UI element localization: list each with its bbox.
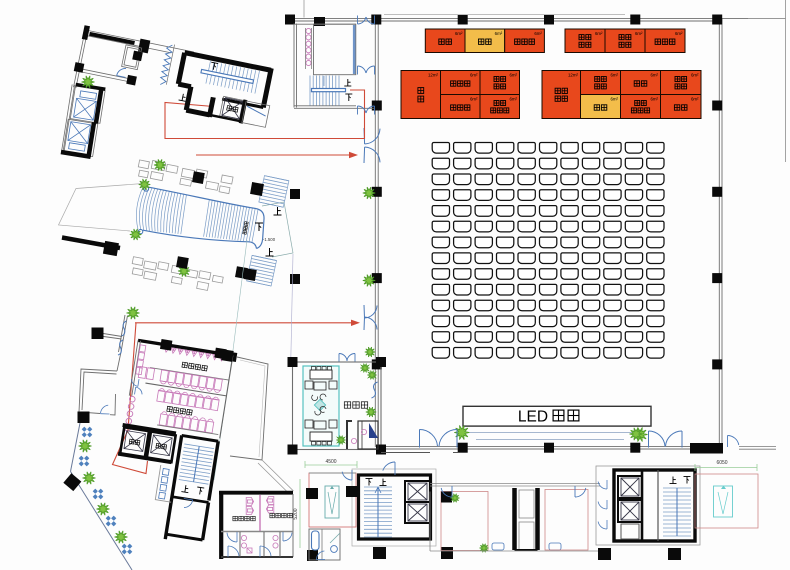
svg-text:6m²: 6m²: [691, 97, 699, 102]
svg-text:6m²: 6m²: [509, 73, 517, 78]
svg-text:4500: 4500: [325, 459, 336, 465]
svg-text:6m²: 6m²: [691, 73, 699, 78]
svg-text:12m²: 12m²: [428, 73, 439, 78]
svg-text:6m²: 6m²: [675, 31, 683, 36]
svg-text:6m²: 6m²: [495, 31, 503, 36]
svg-text:12m²: 12m²: [568, 73, 579, 78]
svg-text:6050: 6050: [716, 460, 727, 466]
svg-text:6m²: 6m²: [455, 31, 463, 36]
svg-text:6m²: 6m²: [470, 73, 478, 78]
svg-text:6m²: 6m²: [610, 97, 618, 102]
svg-text:6m²: 6m²: [650, 97, 658, 102]
svg-text:6m²: 6m²: [595, 31, 603, 36]
svg-text:6m²: 6m²: [650, 73, 658, 78]
svg-text:6m²: 6m²: [509, 97, 517, 102]
svg-text:6m²: 6m²: [534, 31, 542, 36]
svg-text:-1.500: -1.500: [263, 237, 276, 242]
svg-text:6m²: 6m²: [610, 73, 618, 78]
svg-text:LED: LED: [518, 409, 548, 426]
svg-text:6m²: 6m²: [470, 97, 478, 102]
svg-text:6m²: 6m²: [635, 31, 643, 36]
svg-text:5200: 5200: [293, 508, 299, 519]
